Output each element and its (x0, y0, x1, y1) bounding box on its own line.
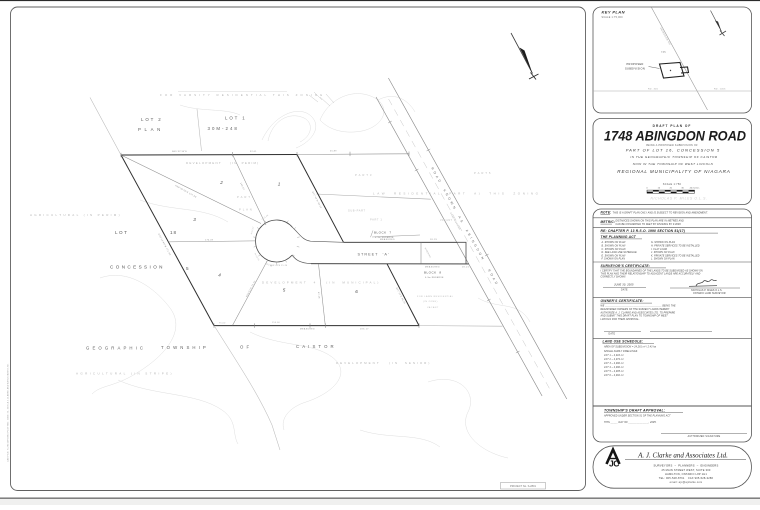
svg-text:150.00: 150.00 (272, 322, 281, 324)
svg-text:TOWNSHIP'S DRAFT APPROVAL:: TOWNSHIP'S DRAFT APPROVAL: (604, 408, 665, 412)
svg-text:NOW IN THE TOWNSHIP OF WE: NOW IN THE TOWNSHIP OF WEST LINCOLN (633, 162, 714, 166)
svg-text:40 metres: 40 metres (690, 186, 701, 189)
svg-text:ONTARIO LAND SURVEYOR: ONTARIO LAND SURVEYOR (693, 292, 726, 295)
svg-text:(IN ZONE): (IN ZONE) (423, 301, 438, 303)
svg-text:VACANT: VACANT (440, 219, 453, 222)
svg-text:DEVELOPMENT 4 (IN MUNICIPA: DEVELOPMENT 4 (IN MUNICIPAL) (262, 281, 381, 285)
svg-text:735: 735 (661, 51, 666, 54)
svg-text:CAISTOR: CAISTOR (296, 344, 337, 349)
svg-text:N69°52'30"E: N69°52'30"E (172, 151, 187, 153)
svg-text:A. SHOWN ON PLAN: A. SHOWN ON PLAN (601, 241, 626, 244)
svg-text:BLOCK 8: BLOCK 8 (424, 270, 442, 274)
svg-text:FOR LAWN RESIDENTIAL: FOR LAWN RESIDENTIAL (417, 295, 454, 298)
svg-text:5: 5 (186, 266, 190, 271)
svg-text:75.00: 75.00 (219, 323, 226, 325)
svg-text:RD. 345: RD. 345 (648, 89, 659, 91)
svg-text:18.21: 18.21 (462, 266, 470, 268)
svg-text:SUB-PART: SUB-PART (348, 209, 366, 213)
svg-text:AUTHORIZED SIGNATURE: AUTHORIZED SIGNATURE (688, 435, 721, 438)
svg-text:PART OF LOT 16, CONCESSION: PART OF LOT 16, CONCESSION 5 (626, 148, 721, 153)
svg-text:STREET 'A': STREET 'A' (358, 252, 390, 256)
svg-text:I. CLAY LOAM: I. CLAY LOAM (651, 248, 667, 251)
svg-text:DATE: DATE (621, 289, 628, 292)
svg-text:32.01: 32.01 (250, 151, 257, 153)
svg-text:B. SHOWN ON PLAN: B. SHOWN ON PLAN (602, 245, 626, 248)
svg-text:SCALE 1:750: SCALE 1:750 (663, 183, 682, 186)
svg-text:LOT 1: LOT 1 (225, 116, 247, 121)
svg-text:LOT: LOT (115, 230, 128, 235)
svg-text:P A R T 1: P A R T 1 (237, 195, 254, 199)
svg-text:APPROVED UNDER SECTION 51 OF T: APPROVED UNDER SECTION 51 OF THE PLANNIN… (603, 415, 671, 418)
svg-text:NICHOLAS P. MILES O.L.S.: NICHOLAS P. MILES O.L.S. (650, 196, 707, 200)
svg-text:FOR VARSITY RESIDENTIAL THI: FOR VARSITY RESIDENTIAL THIS ZONING (160, 93, 325, 97)
svg-text:AREA OF SUBDIVISION = 24,281: AREA OF SUBDIVISION = 24,281 m² / 2.43 h… (603, 345, 657, 348)
svg-text:BEING A PROPOSED SUBDIVISION O: BEING A PROPOSED SUBDIVISION OF (646, 144, 698, 147)
svg-text:N69°42'E 15.24: N69°42'E 15.24 (270, 265, 287, 267)
svg-text:JC: JC (609, 459, 619, 469)
svg-text:PART 1: PART 1 (370, 218, 382, 222)
svg-text:GEOGRAPHIC: GEOGRAPHIC (86, 346, 146, 351)
svg-text:LOT 2: LOT 2 (141, 117, 163, 122)
svg-text:DEVELOPMENT (IN SENIOR): DEVELOPMENT (IN SENIOR) (336, 361, 431, 365)
svg-text:H. PRIVATE SERVICES TO BE INS: H. PRIVATE SERVICES TO BE INSTALLED (651, 245, 700, 248)
svg-text:REGISTERED OWNERS OF THE SUBJE: REGISTERED OWNERS OF THE SUBJECT LANDS H… (601, 308, 670, 311)
svg-text:TEL: 905-528-8761 FAX 905: TEL: 905-528-8761 FAX 905-528-3286 (659, 476, 714, 480)
svg-text:RD. 1005: RD. 1005 (714, 89, 726, 91)
svg-text:JUNE 30, 2005: JUNE 30, 2005 (614, 283, 634, 286)
svg-text:METRIC:: METRIC: (601, 220, 616, 224)
svg-text:P A R T 3: P A R T 3 (355, 173, 372, 177)
svg-text:IN THE GEOGRAPHIC TOWNSHIP: IN THE GEOGRAPHIC TOWNSHIP OF CAISTOR (630, 155, 718, 159)
svg-text:F. SHOWN ON PLAN: F. SHOWN ON PLAN (602, 258, 626, 261)
svg-text:WE __________________________: WE _____________________________________… (601, 306, 676, 308)
svg-text:3: 3 (193, 217, 196, 222)
svg-text:18: 18 (170, 230, 177, 235)
svg-text:SINGLE FAMILY DWELLINGS: SINGLE FAMILY DWELLINGS (604, 350, 638, 353)
svg-text:SURVEYOR'S CERTIFICATE:: SURVEYOR'S CERTIFICATE: (601, 264, 651, 268)
svg-text:DATE: DATE (609, 332, 616, 335)
svg-text:OF: OF (240, 345, 252, 350)
svg-text:18.29: 18.29 (430, 239, 438, 241)
svg-text:MEASURED: MEASURED (300, 327, 315, 330)
svg-text:DRAFT PLAN OF: DRAFT PLAN OF (653, 124, 692, 128)
svg-text:LOT 1 – 4,016 m²: LOT 1 – 4,016 m² (604, 354, 624, 357)
svg-text:NOTE:: NOTE: (601, 210, 612, 214)
svg-text:THIS _____ DAY OF ____________: THIS _____ DAY OF ______________, 2005. (604, 421, 657, 424)
svg-text:AND SUBMIT THIS DRAFT PLAN TO: AND SUBMIT THIS DRAFT PLAN TO TOWNSHIP O… (600, 315, 669, 318)
svg-text:LOT 4 – 4,000 m²: LOT 4 – 4,000 m² (604, 366, 624, 369)
svg-text:CAD FILE: S-2801DP.DWG PLOTTE: CAD FILE: S-2801DP.DWG PLOTTED: JUNE 30,… (7, 363, 10, 462)
svg-text:6: 6 (355, 289, 358, 294)
svg-text:RE: CHAPTER P. 13 R.S.O.: RE: CHAPTER P. 13 R.S.O. 1990 SECTION 51… (601, 229, 686, 233)
svg-text:SUBDIVISION: SUBDIVISION (625, 67, 645, 71)
svg-text:AGRICULTURAL (IN PERIM): AGRICULTURAL (IN PERIM) (30, 213, 122, 217)
svg-text:25 MAIN STREET WEST, SUITE 300: 25 MAIN STREET WEST, SUITE 300 (661, 468, 710, 472)
svg-text:LINCOLN FOR THEIR APPROVAL.: LINCOLN FOR THEIR APPROVAL. (601, 318, 640, 321)
svg-text:DEVELOPMENT (IN PERIM): DEVELOPMENT (IN PERIM) (186, 161, 259, 165)
svg-text:183.17: 183.17 (360, 328, 369, 330)
svg-text:1748 ABINGDON ROAD: 1748 ABINGDON ROAD (604, 129, 746, 144)
svg-text:30M-248: 30M-248 (208, 126, 239, 131)
svg-text:PROPOSED: PROPOSED (627, 62, 644, 66)
svg-text:LAW RESIDENTIAL PART A) TH: LAW RESIDENTIAL PART A) THIS ZONING (373, 192, 541, 196)
svg-text:LOT 6 – 4,002 m²: LOT 6 – 4,002 m² (604, 374, 624, 377)
svg-text:SCALE 1:75,000: SCALE 1:75,000 (602, 16, 624, 19)
svg-text:G. SHOWN ON PLAN: G. SHOWN ON PLAN (651, 241, 675, 244)
svg-text:THIS IS A DRAFT PLAN ONLY AND: THIS IS A DRAFT PLAN ONLY AND IS SUBJECT… (613, 211, 709, 214)
svg-text:A. J. Clarke and Associates Lt: A. J. Clarke and Associates Ltd. (637, 452, 728, 460)
svg-text:5: 5 (283, 288, 286, 293)
svg-text:LAND USE SCHEDULE:: LAND USE SCHEDULE: (603, 339, 644, 343)
svg-text:D. SEE LAND USE SCHEDULE: D. SEE LAND USE SCHEDULE (602, 251, 638, 254)
svg-text:KEY PLAN: KEY PLAN (602, 10, 625, 15)
svg-text:VACANT: VACANT (427, 306, 439, 309)
svg-text:AUTHORIZE A. J. CLARKE AND AS: AUTHORIZE A. J. CLARKE AND ASSOCIATES LT… (600, 311, 676, 314)
svg-text:J. SHOWN ON PLAN: J. SHOWN ON PLAN (651, 251, 675, 254)
svg-text:1: 1 (278, 182, 281, 187)
svg-text:4: 4 (218, 273, 221, 278)
svg-text:REGIONAL MUNICIPALITY OF NI: REGIONAL MUNICIPALITY OF NIAGARA (617, 169, 730, 174)
svg-text:P A R T 5: P A R T 5 (474, 171, 491, 175)
svg-text:BLOCK 7: BLOCK 7 (374, 230, 392, 234)
svg-text:CAN BE CONVERTED TO FEET BY DI: CAN BE CONVERTED TO FEET BY DIVIDING BY … (616, 223, 682, 226)
svg-text:PROJECT No. S-2801: PROJECT No. S-2801 (510, 484, 536, 488)
svg-text:2: 2 (219, 180, 223, 185)
svg-text:55.89: 55.89 (330, 151, 337, 153)
svg-text:THIS PLAN AND THEIR RELATIONSH: THIS PLAN AND THEIR RELATIONSHIP TO ADJA… (601, 273, 701, 276)
svg-text:LOT 3 – 4,000 m²: LOT 3 – 4,000 m² (604, 362, 624, 365)
svg-text:P L A N: P L A N (239, 208, 252, 212)
svg-text:E. SHOWN ON PLAN: E. SHOWN ON PLAN (602, 254, 626, 257)
svg-text:CONCESSION: CONCESSION (110, 265, 165, 270)
svg-text:LOT 5 – 4,005 m²: LOT 5 – 4,005 m² (604, 370, 624, 373)
svg-text:L. SHOWN ON PLAN: L. SHOWN ON PLAN (651, 258, 675, 261)
svg-text:OWNER'S CERTIFICATE:: OWNER'S CERTIFICATE: (601, 299, 644, 303)
svg-text:SURVEYORS – PLANNERS – ENG: SURVEYORS – PLANNERS – ENGINEERS (653, 463, 718, 467)
svg-text:HAMILTON, ONTARIO L8P 1H1: HAMILTON, ONTARIO L8P 1H1 (665, 472, 707, 476)
svg-text:C. SHOWN ON PLAN: C. SHOWN ON PLAN (602, 248, 626, 251)
svg-text:AGRICULTURAL (IN STRIPE): AGRICULTURAL (IN STRIPE) (76, 372, 174, 376)
svg-text:THE PLANNING ACT: THE PLANNING ACT (601, 235, 637, 239)
svg-text:K. PRIVATE SERVICES TO BE INS: K. PRIVATE SERVICES TO BE INSTALLED (651, 254, 700, 257)
svg-text:0.3m RESERVE: 0.3m RESERVE (425, 277, 444, 279)
svg-text:TOWNSHIP: TOWNSHIP (161, 345, 209, 350)
svg-text:CORRECTLY SHOWN.: CORRECTLY SHOWN. (601, 277, 627, 279)
svg-text:MEASURED: MEASURED (380, 238, 395, 241)
svg-text:NICHOLAS P. MILES O.L.S.: NICHOLAS P. MILES O.L.S. (691, 289, 723, 292)
svg-text:170.09: 170.09 (205, 240, 214, 242)
svg-text:MEASURED: MEASURED (425, 265, 440, 268)
svg-text:PLAN: PLAN (138, 127, 164, 132)
svg-text:email: ajc@ajclarke.com: email: ajc@ajclarke.com (670, 480, 703, 484)
svg-text:LOT 2 – 4,074 m²: LOT 2 – 4,074 m² (604, 358, 624, 361)
svg-text:I CERTIFY THAT THE BOUNDARIES: I CERTIFY THAT THE BOUNDARIES OF THE LAN… (601, 269, 704, 272)
svg-text:DISTANCES SHOWN ON THIS PLAN A: DISTANCES SHOWN ON THIS PLAN ARE IN METR… (616, 219, 685, 222)
